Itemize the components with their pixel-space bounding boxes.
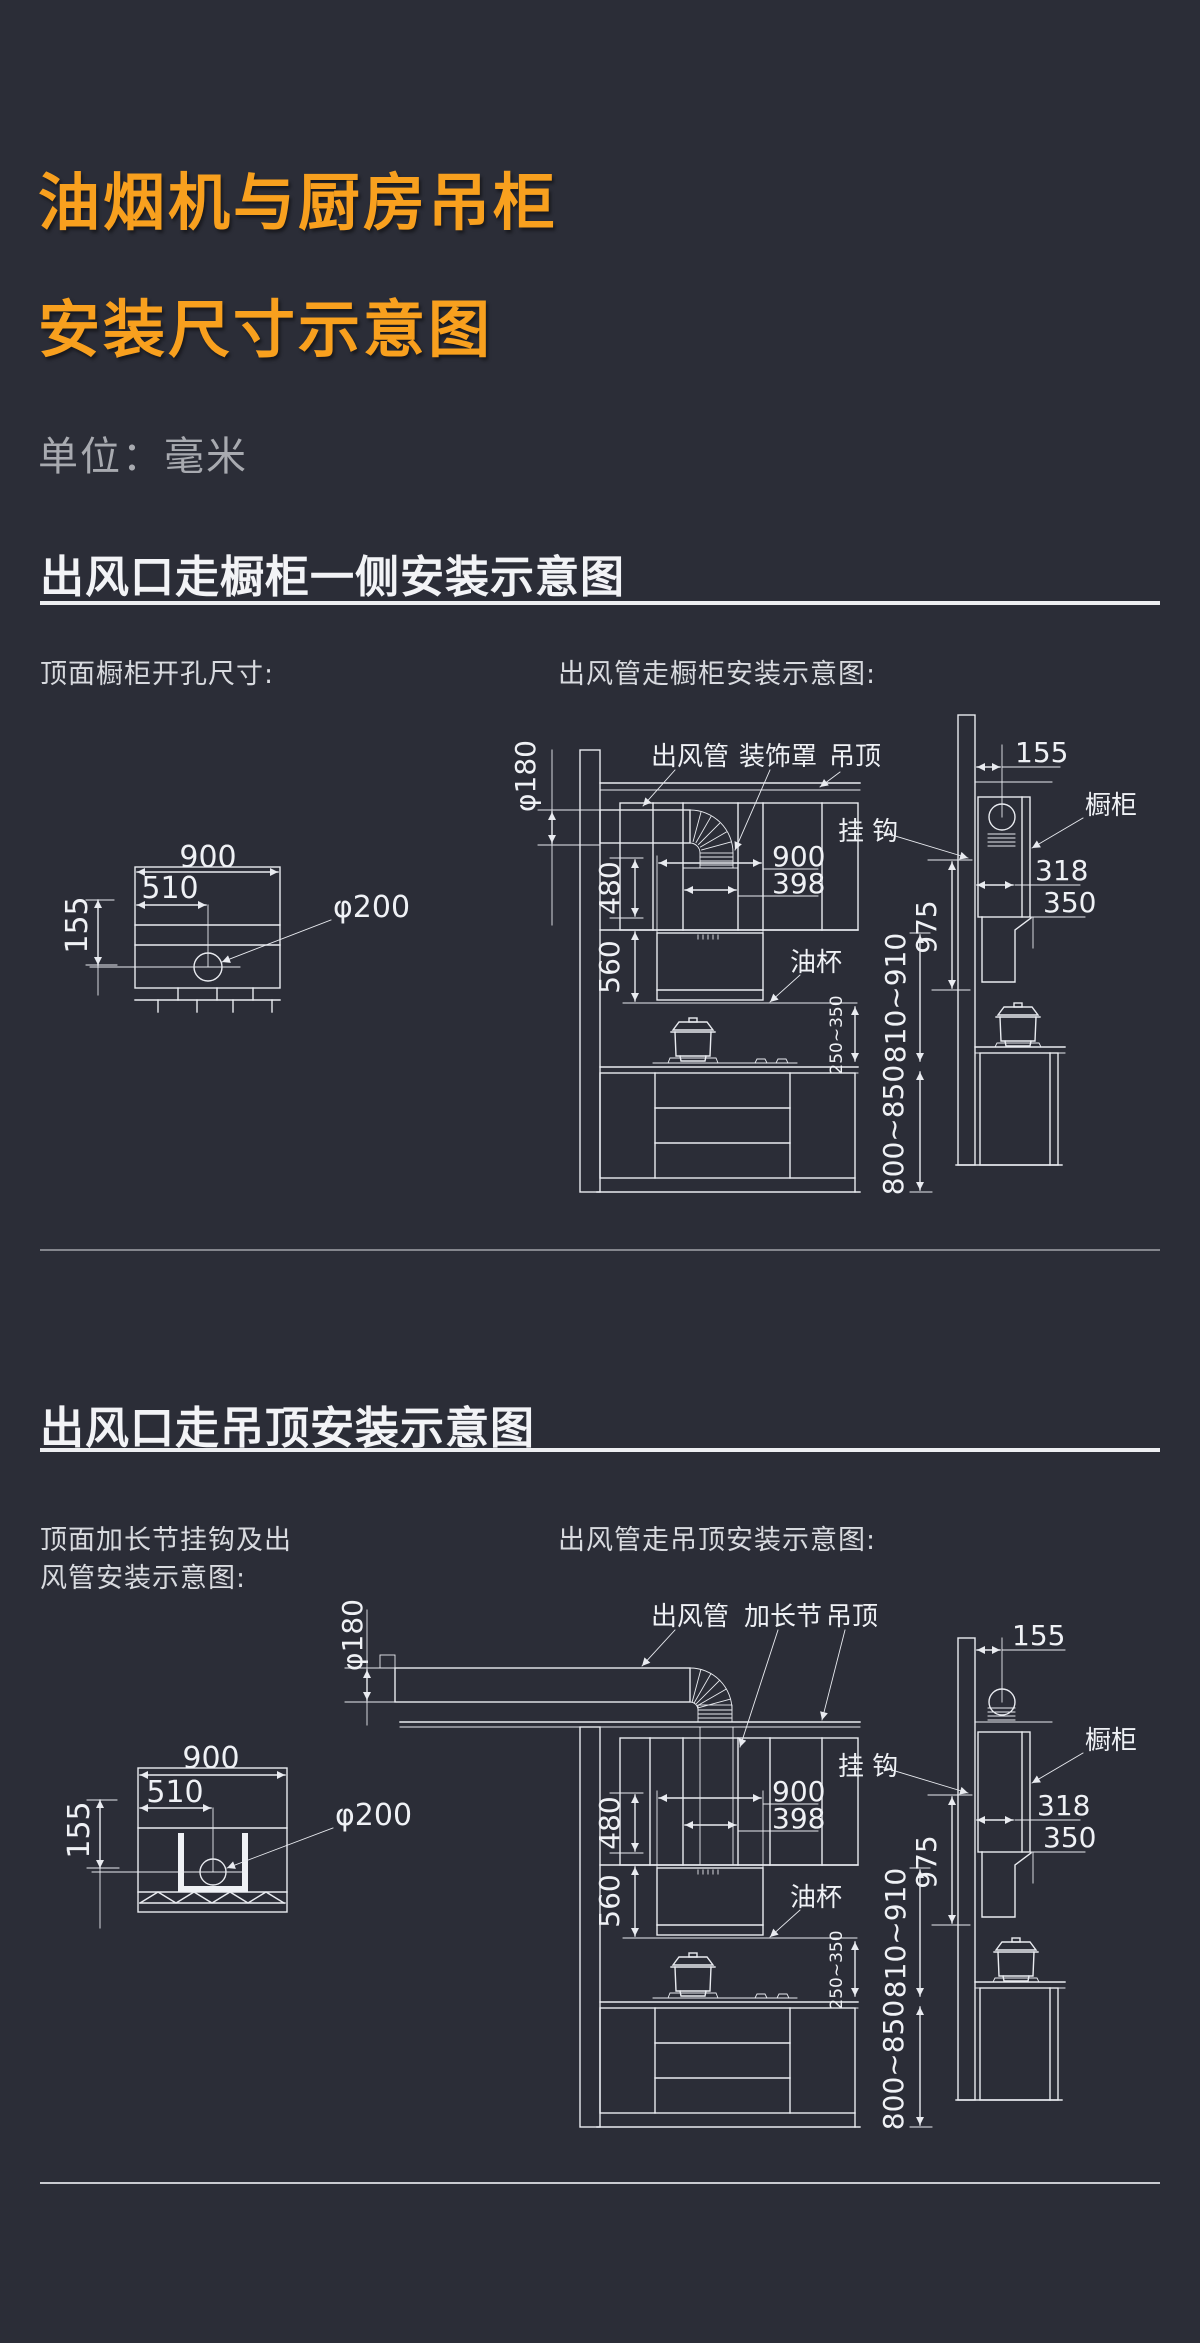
install-view-cabinet-side: 出风管 装饰罩 吊顶 油杯 φ180 900 398 480 560 250~3… <box>470 690 1170 1210</box>
duct-elbow <box>690 1668 732 1722</box>
dimensions: φ180 900 398 480 560 250~350 810~910 800… <box>509 740 932 1195</box>
dim-560: 560 <box>593 940 626 993</box>
side-base-cabinet <box>956 1047 1065 1165</box>
label-ceiling: 吊顶 <box>826 1602 878 1632</box>
section2-heading: 出风口走吊顶安装示意图 <box>40 1392 535 1456</box>
dim-318: 318 <box>1035 854 1088 887</box>
gas-hob <box>653 1058 797 1063</box>
unit-label: 单位：毫米 <box>38 424 248 482</box>
part-labels: 出风管 装饰罩 吊顶 油杯 <box>643 742 881 1002</box>
dim-hob-gap: 250~350 <box>827 995 847 1074</box>
dim-350: 350 <box>1043 886 1096 919</box>
dim-cutout-offset: 510 <box>141 871 198 906</box>
section1-heading: 出风口走橱柜一侧安装示意图 <box>40 541 625 605</box>
wall-side <box>958 715 975 1165</box>
install-view-ceiling: 出风管 加长节 吊顶 油杯 φ180 900 398 480 560 250~3… <box>340 1590 1170 2150</box>
dim-560: 560 <box>593 1874 626 1927</box>
cooking-pot <box>671 1953 715 1996</box>
dim-480: 480 <box>593 1796 626 1849</box>
label-extension: 加长节 <box>744 1602 822 1632</box>
dim-480: 480 <box>593 861 626 914</box>
dim-350: 350 <box>1043 1821 1096 1854</box>
dim-counter-height: 800~850 <box>877 2000 910 2130</box>
side-pot <box>994 1938 1038 1981</box>
base-cabinet <box>597 2002 860 2127</box>
dim-318: 318 <box>1037 1789 1090 1822</box>
label-duct: 出风管 <box>651 1602 729 1632</box>
dim-mount-range: 810~910 <box>879 1868 912 1998</box>
cutout-hole <box>90 905 240 981</box>
dim-wall-gap: 155 <box>1012 1619 1065 1652</box>
dim-cutout-width: 900 <box>179 840 236 875</box>
section1-underline <box>40 601 1160 605</box>
section1-right-caption: 出风管走橱柜安装示意图: <box>558 656 876 694</box>
section2-left-caption-line2: 风管安装示意图: <box>40 1560 292 1598</box>
dim-hob-gap: 250~350 <box>827 1930 847 2009</box>
ceiling-lines <box>400 1722 860 1727</box>
cutout-dimensions: 900 510 155 φ200 <box>60 840 410 995</box>
label-ceiling: 吊顶 <box>829 742 881 772</box>
dim-cutout-edge: 155 <box>60 896 95 953</box>
section2-left-caption: 顶面加长节挂钩及出 风管安装示意图: <box>40 1522 292 1598</box>
side-duct-ribs <box>988 834 1015 846</box>
poster-page: { "page": { "title_line1": "油烟机与厨房吊柜", "… <box>0 0 1200 2343</box>
side-cabinet <box>978 1732 1030 1852</box>
section-divider-2 <box>40 2182 1160 2184</box>
page-title-line1: 油烟机与厨房吊柜 <box>38 170 558 236</box>
label-cabinet: 橱柜 <box>1085 1726 1137 1756</box>
label-hook: 挂 钩 <box>838 817 898 847</box>
exhaust-duct <box>395 1668 690 1702</box>
cutout-hole <box>92 1808 245 1885</box>
base-cabinet <box>597 1067 860 1192</box>
dim-wall-gap: 155 <box>1015 736 1068 769</box>
duct-end-stub <box>380 1655 395 1668</box>
dim-975: 975 <box>910 900 943 953</box>
label-cabinet: 橱柜 <box>1085 791 1137 821</box>
dim-cutout-width: 900 <box>182 1741 239 1776</box>
dim-duct-dia: φ180 <box>340 1599 369 1671</box>
dim-duct-dia: φ180 <box>509 740 542 812</box>
side-cabinet <box>978 797 1030 917</box>
cooking-pot <box>671 1018 715 1061</box>
side-hood-profile <box>982 917 1031 982</box>
section2-underline <box>40 1448 1160 1452</box>
dim-cutout-edge: 155 <box>62 1801 97 1858</box>
dim-counter-height: 800~850 <box>877 1065 910 1195</box>
side-pot <box>996 1003 1040 1046</box>
wall-side <box>958 1638 975 2100</box>
dim-cutout-hole: φ200 <box>333 890 410 925</box>
section1-left-caption: 顶面橱柜开孔尺寸: <box>40 656 274 694</box>
exhaust-duct <box>600 810 690 843</box>
section2-right-caption: 出风管走吊顶安装示意图: <box>558 1522 876 1560</box>
section-divider-1 <box>40 1249 1160 1251</box>
label-oil-cup: 油杯 <box>790 948 842 978</box>
dim-cover-width: 398 <box>772 1802 825 1835</box>
dim-cutout-offset: 510 <box>146 1775 203 1810</box>
side-hood-profile <box>982 1852 1031 1917</box>
label-duct: 出风管 <box>651 742 729 772</box>
label-hook: 挂 钩 <box>838 1752 898 1782</box>
duct-elbow <box>690 810 733 868</box>
label-cover: 装饰罩 <box>739 742 817 772</box>
side-base-cabinet <box>956 1982 1065 2100</box>
gas-hob <box>653 1993 797 1998</box>
page-title-line2: 安装尺寸示意图 <box>38 297 493 363</box>
dim-975: 975 <box>910 1835 943 1888</box>
dim-cover-width: 398 <box>772 867 825 900</box>
label-oil-cup: 油杯 <box>790 1883 842 1913</box>
dim-mount-range: 810~910 <box>879 933 912 1063</box>
section2-left-caption-line1: 顶面加长节挂钩及出 <box>40 1522 292 1560</box>
cutout-top-view-1: 900 510 155 φ200 <box>40 800 420 1035</box>
